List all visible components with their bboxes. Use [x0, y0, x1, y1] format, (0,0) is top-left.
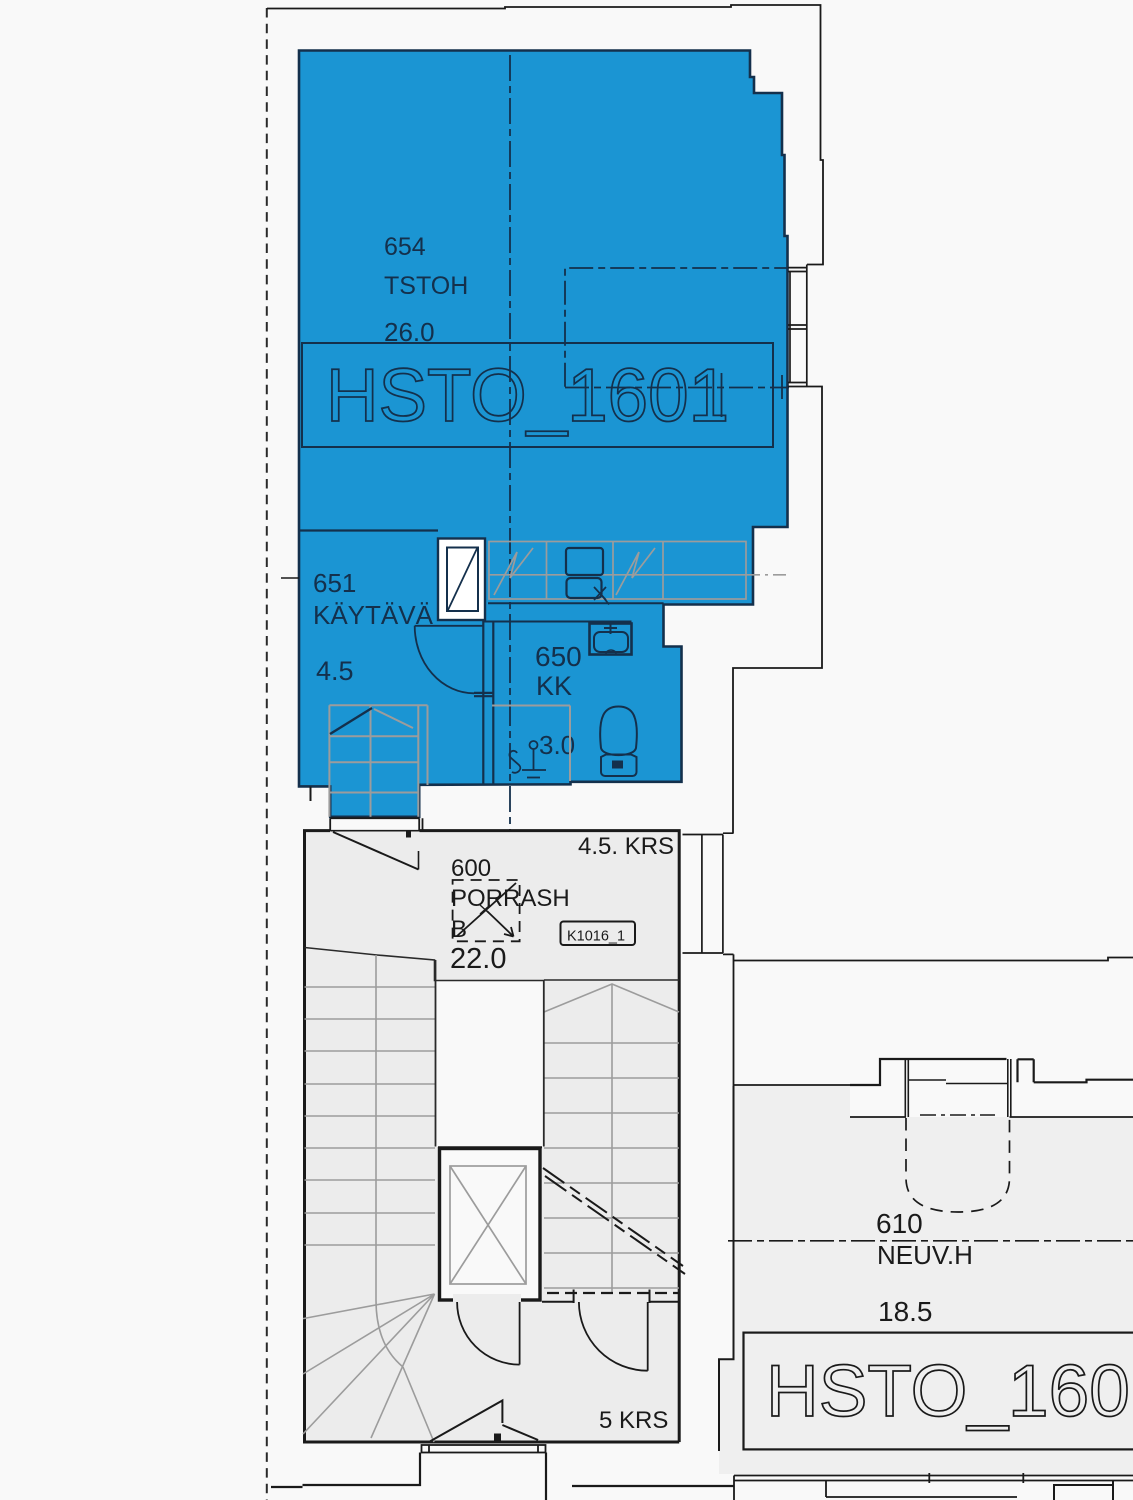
svg-text:NEUV.H: NEUV.H	[877, 1240, 973, 1270]
svg-text:5 KRS: 5 KRS	[599, 1407, 668, 1434]
svg-text:650: 650	[535, 641, 582, 672]
svg-text:654: 654	[384, 233, 426, 261]
svg-text:600: 600	[451, 855, 491, 882]
svg-text:HSTO_1601: HSTO_1601	[326, 353, 729, 437]
svg-text:22.0: 22.0	[450, 943, 506, 975]
svg-text:4.5. KRS: 4.5. KRS	[578, 833, 674, 860]
svg-text:KK: KK	[536, 671, 572, 701]
svg-text:HSTO_1601: HSTO_1601	[766, 1351, 1133, 1432]
svg-text:K1016_1: K1016_1	[567, 929, 625, 945]
svg-text:610: 610	[876, 1208, 923, 1239]
svg-text:18.5: 18.5	[878, 1296, 933, 1327]
svg-text:651: 651	[313, 568, 356, 598]
svg-text:4.5: 4.5	[316, 656, 354, 686]
svg-text:TSTOH: TSTOH	[384, 272, 468, 300]
